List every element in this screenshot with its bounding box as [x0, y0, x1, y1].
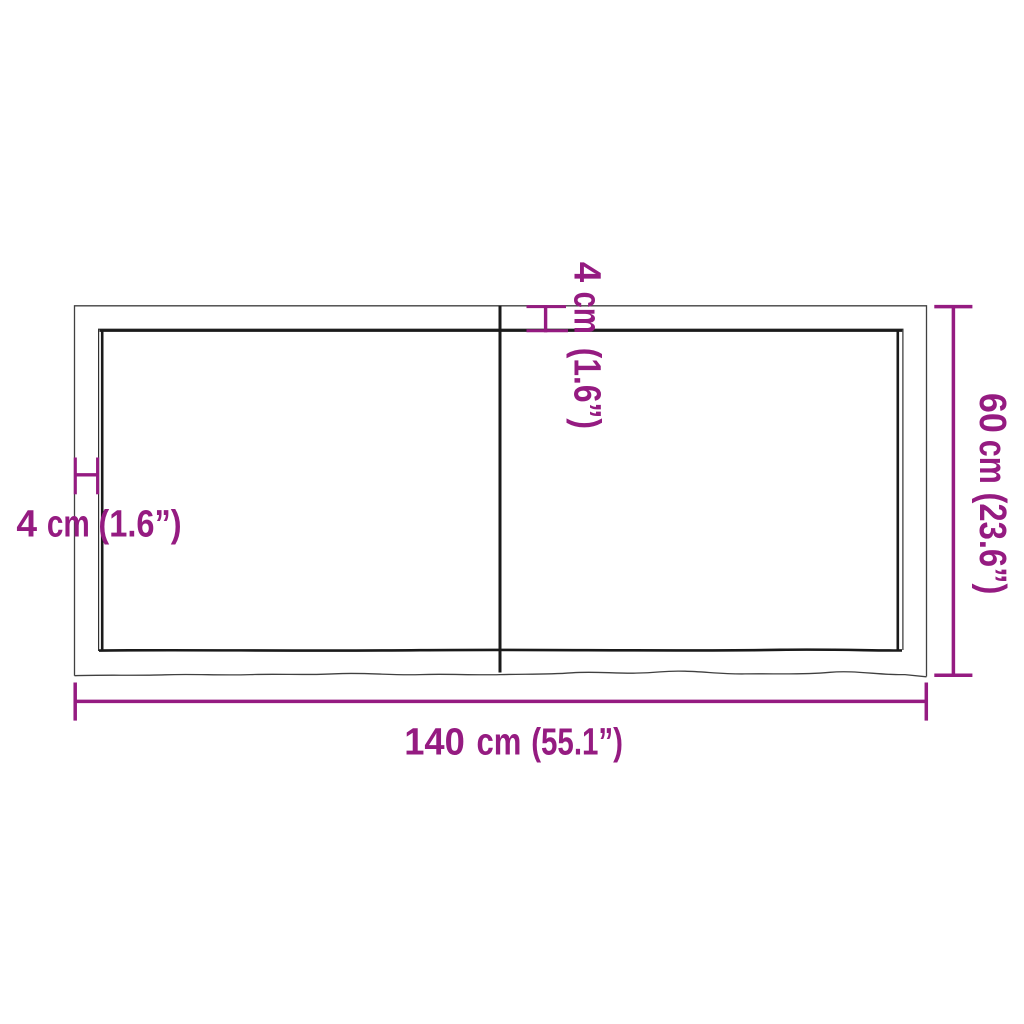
svg-text:cm: cm	[971, 440, 1013, 484]
svg-text:60: 60	[971, 393, 1013, 433]
svg-text:4: 4	[566, 262, 608, 282]
svg-text:140: 140	[404, 722, 465, 764]
svg-text:cm: cm	[47, 504, 90, 546]
svg-text:cm: cm	[566, 292, 608, 334]
svg-text:(55.1”): (55.1”)	[531, 722, 623, 764]
svg-text:(1.6”): (1.6”)	[566, 348, 608, 429]
svg-text:4: 4	[16, 504, 37, 546]
svg-text:cm: cm	[477, 722, 522, 764]
svg-text:(1.6”): (1.6”)	[98, 504, 181, 546]
svg-text:(23.6”): (23.6”)	[971, 493, 1013, 595]
